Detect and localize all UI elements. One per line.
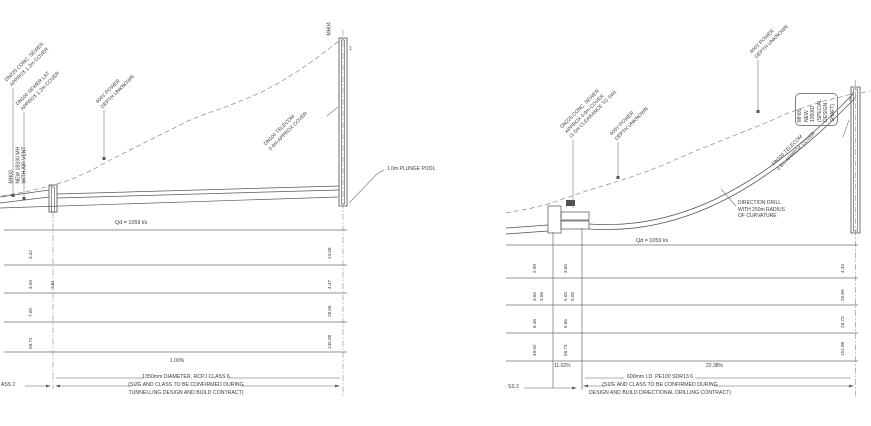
mh05-shaft	[849, 87, 860, 233]
level-value: 3.59	[28, 280, 34, 289]
level-value: 25.69	[840, 289, 846, 301]
level-value: 5.00	[563, 292, 569, 301]
right-design-flow: Qd = 1059 l/s	[636, 238, 668, 245]
level-value: 151.98	[840, 342, 846, 356]
left-centerlines	[53, 30, 343, 397]
plunge-pool-leader	[349, 170, 384, 203]
level-value: 3.42	[28, 250, 34, 259]
level-value: 3.65	[563, 264, 569, 273]
level-value: 3.50	[532, 292, 538, 301]
level-value: 24.08	[327, 247, 333, 259]
level-value: 145.08	[327, 335, 333, 349]
right-gradient-value-2: 22.38%	[706, 363, 723, 370]
level-value: 4.43	[840, 264, 846, 273]
right-class-label: SS 2	[508, 384, 519, 391]
right-gradient-value-1: 11.02%	[554, 363, 571, 370]
long-section-drawing: DN225 CONC. SEWER APPROX 1.2m COVER DN10…	[0, 0, 871, 426]
level-value: 6.65	[563, 319, 569, 328]
plunge-pool-label: 1.0m PLUNGE POOL	[387, 166, 435, 173]
level-value: 28.56	[327, 305, 333, 317]
level-value: 58.72	[28, 337, 34, 349]
left-design-flow: Qd = 1059 l/s	[115, 220, 147, 227]
level-value: 4.47	[327, 280, 333, 289]
direction-drill-note: DIRECTION DRILL WITH 250m RADIUS OF CURV…	[738, 200, 785, 220]
level-value: 28.73	[840, 316, 846, 328]
level-value: 5.08	[570, 292, 576, 301]
right-pipe-spec: 600mm I.D. PE100 SDR13.6 (SIZE AND CLASS…	[565, 373, 755, 397]
left-gradient-value: 1.00%	[170, 358, 184, 365]
gradient-marker: 1	[349, 46, 352, 53]
level-value: 49.92	[532, 344, 538, 356]
level-value: 6.48	[532, 319, 538, 328]
level-value: 3.58	[539, 292, 545, 301]
left-class-label: ASS 2	[1, 382, 15, 389]
level-value: 2.99	[532, 264, 538, 273]
level-value: 3.61	[50, 280, 56, 289]
mh03-shaft	[49, 185, 57, 212]
left-pipe-spec: 1350mm DIAMETER, RCPJ CLASS 6 (SIZE AND …	[96, 373, 276, 397]
manhole-label-mh03: MH03 NEW 1B100 MH WITH AIR VENT	[9, 147, 29, 184]
left-pipe-lines	[0, 186, 339, 208]
level-value: 58.73	[563, 344, 569, 356]
shaft-label-mh05: MH05 NEW 1050ID (SPECIAL DESIGN SHAFT)	[795, 93, 838, 126]
entry-structure	[506, 200, 589, 234]
manhole-label-mh04: MH04	[327, 22, 334, 35]
level-value: 7.00	[28, 308, 34, 317]
left-table-grid	[4, 230, 347, 352]
